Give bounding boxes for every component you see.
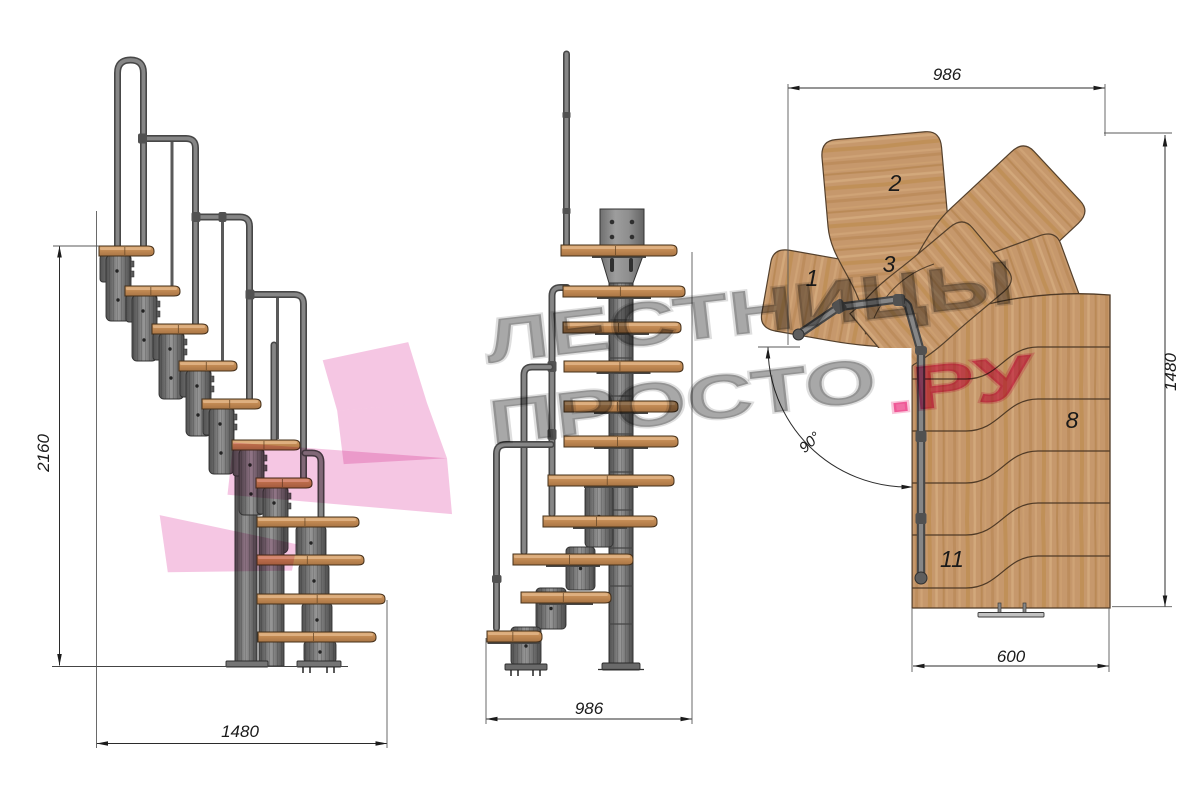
svg-text:11: 11 xyxy=(940,546,964,572)
svg-text:1480: 1480 xyxy=(1161,353,1180,391)
svg-text:986: 986 xyxy=(575,699,604,718)
svg-text:986: 986 xyxy=(933,65,962,84)
svg-text:1480: 1480 xyxy=(221,722,259,741)
svg-text:2: 2 xyxy=(888,170,902,196)
svg-text:8: 8 xyxy=(1066,407,1079,433)
svg-text:2160: 2160 xyxy=(34,434,53,473)
svg-text:600: 600 xyxy=(997,647,1026,666)
